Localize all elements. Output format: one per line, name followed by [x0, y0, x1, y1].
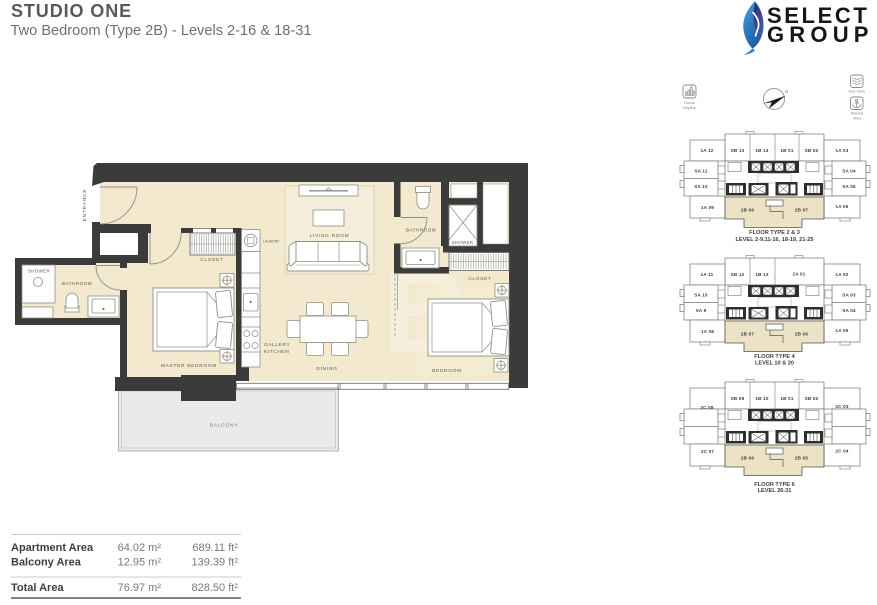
svg-text:LEVEL 2-9,11-16, 18-19, 21-25: LEVEL 2-9,11-16, 18-19, 21-25 — [736, 237, 814, 243]
svg-text:View: View — [853, 116, 862, 121]
svg-text:SA 9: SA 9 — [696, 308, 707, 313]
svg-text:ENTRANCE: ENTRANCE — [82, 189, 88, 222]
svg-text:SA 11: SA 11 — [694, 169, 708, 174]
svg-text:SA 04: SA 04 — [842, 169, 856, 174]
svg-text:1B 14: 1B 14 — [755, 148, 769, 153]
svg-text:12.95 m²: 12.95 m² — [118, 557, 162, 569]
svg-text:SA 04: SA 04 — [842, 308, 856, 313]
svg-text:LAUNDRY: LAUNDRY — [263, 240, 280, 244]
svg-text:Apartment Area: Apartment Area — [11, 542, 94, 554]
svg-text:KITCHEN: KITCHEN — [264, 349, 289, 355]
svg-text:1A 12: 1A 12 — [700, 148, 713, 153]
svg-text:1B 01: 1B 01 — [780, 148, 794, 153]
svg-text:1B 13: 1B 13 — [755, 272, 769, 277]
svg-text:1A 08: 1A 08 — [701, 329, 714, 334]
svg-text:2C 08: 2C 08 — [700, 405, 714, 410]
svg-text:LEVEL 26-31: LEVEL 26-31 — [758, 488, 792, 494]
svg-text:2C 07: 2C 07 — [701, 449, 715, 454]
svg-text:SB 09: SB 09 — [731, 396, 745, 401]
svg-text:2C 04: 2C 04 — [835, 449, 849, 454]
svg-text:SB 02: SB 02 — [805, 148, 819, 153]
svg-text:BALCONY: BALCONY — [210, 423, 239, 429]
svg-text:689.11 ft²: 689.11 ft² — [192, 542, 238, 554]
svg-text:GROUP: GROUP — [767, 22, 874, 47]
svg-text:SHOWER: SHOWER — [452, 240, 474, 245]
svg-text:GALLERY: GALLERY — [264, 342, 290, 348]
svg-text:SA 10: SA 10 — [694, 184, 708, 189]
svg-text:1A 09: 1A 09 — [701, 205, 714, 210]
svg-text:CLOSET: CLOSET — [468, 276, 491, 281]
svg-text:1A 11: 1A 11 — [701, 272, 714, 277]
svg-text:2A 01: 2A 01 — [792, 272, 805, 277]
svg-text:BEDROOM: BEDROOM — [432, 368, 462, 374]
svg-text:SB 13: SB 13 — [731, 148, 745, 153]
svg-text:76.97 m²: 76.97 m² — [118, 582, 162, 594]
svg-text:SHOWER: SHOWER — [28, 269, 50, 274]
svg-text:Balcony Area: Balcony Area — [11, 557, 82, 569]
svg-text:MASTER BEDROOM: MASTER BEDROOM — [161, 363, 217, 369]
svg-text:Sea View: Sea View — [848, 89, 865, 94]
svg-text:Total Area: Total Area — [11, 582, 64, 594]
svg-text:LEVEL 10 & 20: LEVEL 10 & 20 — [755, 361, 794, 367]
svg-text:2B 06: 2B 06 — [795, 332, 809, 337]
svg-text:DINING: DINING — [316, 366, 338, 372]
svg-text:2B 06: 2B 06 — [741, 456, 755, 461]
svg-text:2B 07: 2B 07 — [741, 332, 755, 337]
svg-text:1A 02: 1A 02 — [835, 272, 848, 277]
svg-text:BATHROOM: BATHROOM — [62, 281, 92, 286]
svg-text:2B 06: 2B 06 — [741, 208, 755, 213]
svg-text:2B 07: 2B 07 — [795, 208, 809, 213]
svg-text:1B 01: 1B 01 — [780, 396, 794, 401]
svg-text:2B 05: 2B 05 — [795, 456, 809, 461]
svg-text:64.02 m²: 64.02 m² — [118, 542, 162, 554]
svg-text:CLOSET: CLOSET — [200, 257, 223, 262]
svg-text:2C 03: 2C 03 — [835, 404, 849, 409]
svg-text:FLOOR TYPE 4: FLOOR TYPE 4 — [754, 354, 795, 360]
svg-text:SB 12: SB 12 — [731, 272, 745, 277]
svg-text:828.50 ft²: 828.50 ft² — [192, 582, 239, 594]
svg-text:N: N — [785, 89, 788, 94]
svg-text:Skyline: Skyline — [683, 105, 697, 110]
svg-text:STUDIO ONE: STUDIO ONE — [11, 1, 132, 21]
svg-text:SA 05: SA 05 — [842, 184, 856, 189]
svg-text:SA 03: SA 03 — [842, 293, 856, 298]
svg-text:1A 03: 1A 03 — [835, 148, 848, 153]
svg-text:139.39 ft²: 139.39 ft² — [192, 557, 239, 569]
svg-text:LIVING ROOM: LIVING ROOM — [310, 233, 350, 239]
svg-text:1A 05: 1A 05 — [835, 328, 848, 333]
svg-text:SB 02: SB 02 — [805, 396, 819, 401]
svg-text:BATHROOM: BATHROOM — [406, 228, 436, 233]
svg-text:1B 10: 1B 10 — [755, 396, 769, 401]
svg-text:1A 06: 1A 06 — [835, 204, 848, 209]
svg-text:Two Bedroom (Type 2B) - Levels: Two Bedroom (Type 2B) - Levels 2-16 & 18… — [11, 23, 312, 39]
svg-text:FLOOR TYPE 2 & 3: FLOOR TYPE 2 & 3 — [749, 230, 800, 236]
svg-text:SA 10: SA 10 — [694, 293, 708, 298]
